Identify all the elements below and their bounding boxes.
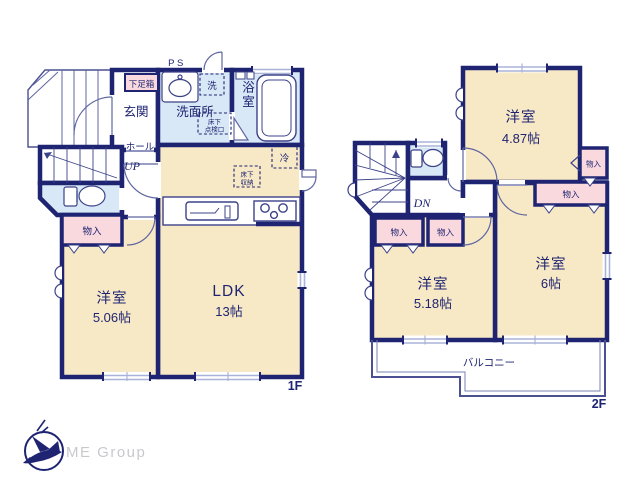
label-western-1f-name: 洋室 — [97, 290, 128, 307]
toilet-fixture-2f — [411, 150, 443, 168]
room-ldk — [158, 145, 302, 377]
stairs-1f — [40, 147, 122, 183]
label-closet-2fd: 物入 — [437, 228, 455, 238]
logo-accent-lines — [37, 420, 48, 433]
label-western-2fb-size: 5.18帖 — [414, 296, 452, 311]
label-inspection-2: 点検口 — [205, 125, 225, 134]
label-underfloor-1: 床下 — [241, 170, 255, 179]
floorplan-page: PS 下足箱 玄関 洗 洗面所 床下 点検口 浴室 ホール UP 冷 床下 収納… — [0, 0, 640, 480]
label-bath: 浴室 — [240, 81, 254, 110]
label-western-2fc-name: 洋室 — [536, 256, 567, 273]
label-western-2fa-size: 4.87帖 — [502, 131, 540, 146]
label-ldk-name: LDK — [212, 283, 245, 300]
kitchen-counter — [163, 197, 302, 225]
floor1-plan: PS 下足箱 玄関 洗 洗面所 床下 点検口 浴室 ホール UP 冷 床下 収納… — [28, 52, 316, 393]
label-western-2fb-name: 洋室 — [418, 276, 449, 293]
logo-company-name: ME Group — [66, 444, 146, 461]
label-washroom: 洗面所 — [176, 105, 214, 119]
label-balcony: バルコニー — [463, 357, 515, 369]
label-inspection-1: 床下 — [208, 117, 222, 126]
floor2-plan: 洋室 4.87帖 DN 物入 物入 物入 物入 洋室 5.18帖 洋室 6帖 バ… — [348, 64, 612, 412]
label-closet-2fb: 物入 — [562, 190, 580, 200]
label-western-2fa-name: 洋室 — [506, 109, 537, 126]
label-underfloor-2: 収納 — [241, 178, 254, 187]
label-closet-2fa: 物入 — [586, 159, 601, 169]
label-hall: ホール — [126, 142, 155, 153]
label-dn: DN — [413, 196, 432, 210]
label-closet-1f: 物入 — [82, 226, 102, 238]
floorplan-drawing: PS 下足箱 玄関 洗 洗面所 床下 点検口 浴室 ホール UP 冷 床下 収納… — [0, 0, 640, 480]
corridor-2f — [463, 182, 495, 215]
label-shoe-box: 下足箱 — [129, 79, 155, 89]
label-ldk-size: 13帖 — [215, 304, 242, 319]
label-closet-2fc: 物入 — [390, 228, 408, 238]
label-ps: PS — [168, 58, 186, 69]
label-western-2fc-size: 6帖 — [541, 276, 561, 291]
washbasin — [162, 72, 198, 102]
floor2-rooms — [355, 68, 607, 340]
toilet-fixture-1f — [64, 186, 105, 206]
label-fridge: 冷 — [280, 153, 290, 165]
label-floor2: 2F — [592, 397, 607, 411]
porch — [28, 70, 112, 147]
label-entrance: 玄関 — [123, 104, 148, 119]
label-up: UP — [124, 159, 141, 173]
label-laundry: 洗 — [207, 80, 217, 92]
company-logo: ME Group — [23, 420, 146, 470]
label-western-1f-size: 5.06帖 — [93, 310, 131, 325]
label-floor1: 1F — [288, 379, 303, 393]
